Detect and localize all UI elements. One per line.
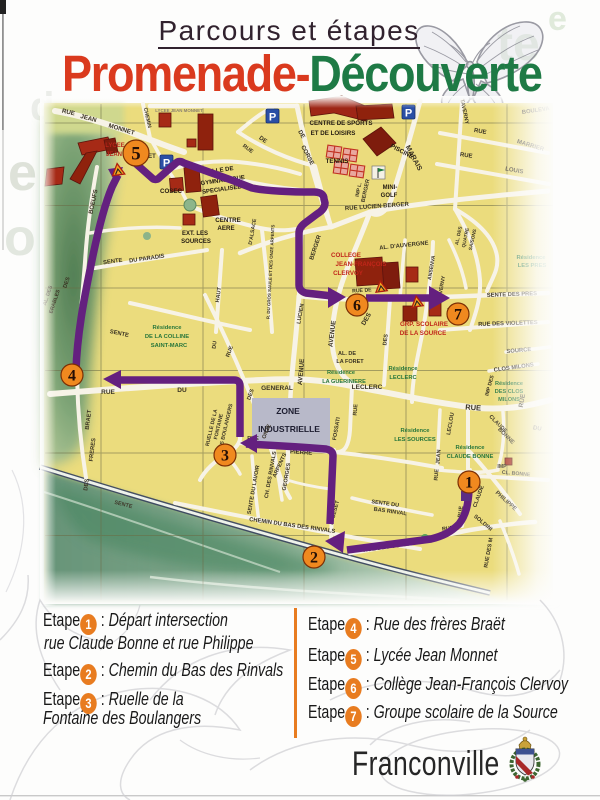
svg-text:RUE: RUE	[353, 404, 360, 416]
svg-text:1: 1	[465, 475, 473, 492]
svg-text:LYCEE: LYCEE	[105, 143, 124, 149]
svg-text:e: e	[8, 144, 37, 202]
svg-text:AL. DE: AL. DE	[338, 351, 356, 357]
svg-text:JEAN-FRANÇOIS: JEAN-FRANÇOIS	[336, 261, 387, 268]
svg-text:Résidence: Résidence	[327, 370, 355, 376]
svg-text:2: 2	[310, 550, 318, 567]
svg-text:DE LA COLLINE: DE LA COLLINE	[145, 334, 189, 340]
svg-text:P: P	[405, 108, 412, 120]
svg-text:SOURCES: SOURCES	[181, 239, 211, 245]
svg-text:SAINT-MARC: SAINT-MARC	[151, 343, 188, 349]
svg-text:GRP. SCOLAIRE: GRP. SCOLAIRE	[400, 321, 448, 328]
svg-text:CLERVOY: CLERVOY	[333, 270, 364, 277]
svg-text:AERE: AERE	[217, 225, 234, 232]
svg-text:CENTRE: CENTRE	[215, 217, 240, 224]
svg-text:JEAN: JEAN	[435, 449, 442, 464]
svg-text:EXT. LES: EXT. LES	[182, 231, 208, 237]
svg-text:MINI-: MINI-	[383, 185, 398, 191]
svg-text:P: P	[269, 112, 276, 124]
svg-text:TENNIS: TENNIS	[326, 158, 349, 165]
svg-text:3: 3	[221, 448, 229, 465]
svg-text:ET DE LOISIRS: ET DE LOISIRS	[311, 130, 356, 137]
svg-text:DE LA SOURCE: DE LA SOURCE	[400, 330, 447, 337]
svg-text:ZONE: ZONE	[276, 406, 300, 416]
svg-text:LES SOURCES: LES SOURCES	[394, 437, 436, 443]
svg-text:RUE: RUE	[465, 402, 481, 412]
svg-text:Résidence: Résidence	[389, 366, 419, 372]
svg-text:Résidence: Résidence	[456, 445, 486, 451]
svg-text:LA FORET: LA FORET	[336, 359, 364, 365]
svg-text:6: 6	[353, 298, 361, 315]
svg-text:LECLERC: LECLERC	[352, 384, 383, 391]
svg-text:LYCEE JEAN MONNET: LYCEE JEAN MONNET	[155, 108, 203, 113]
svg-text:5: 5	[131, 144, 140, 165]
svg-text:RUE: RUE	[434, 469, 441, 481]
svg-text:CENTRE DE SPORTS: CENTRE DE SPORTS	[310, 120, 373, 127]
svg-text:JEAN: JEAN	[106, 152, 122, 158]
svg-text:GOLF: GOLF	[381, 193, 398, 199]
svg-text:COSEC: COSEC	[160, 188, 183, 195]
svg-text:COLLEGE: COLLEGE	[331, 252, 361, 259]
svg-text:CLAUDE BONNE: CLAUDE BONNE	[447, 454, 494, 460]
svg-text:DU: DU	[177, 387, 187, 394]
svg-text:o: o	[4, 209, 36, 267]
svg-text:DU: DU	[211, 340, 218, 349]
svg-text:RUE: RUE	[101, 389, 115, 396]
svg-text:GENERAL: GENERAL	[261, 385, 293, 392]
svg-text:7: 7	[454, 307, 462, 324]
svg-text:LECLERC: LECLERC	[389, 375, 417, 381]
svg-text:LA GUERINIERE: LA GUERINIERE	[322, 379, 366, 385]
svg-text:4: 4	[68, 368, 76, 385]
svg-text:Résidence: Résidence	[401, 428, 431, 434]
svg-text:Résidence: Résidence	[153, 325, 183, 331]
